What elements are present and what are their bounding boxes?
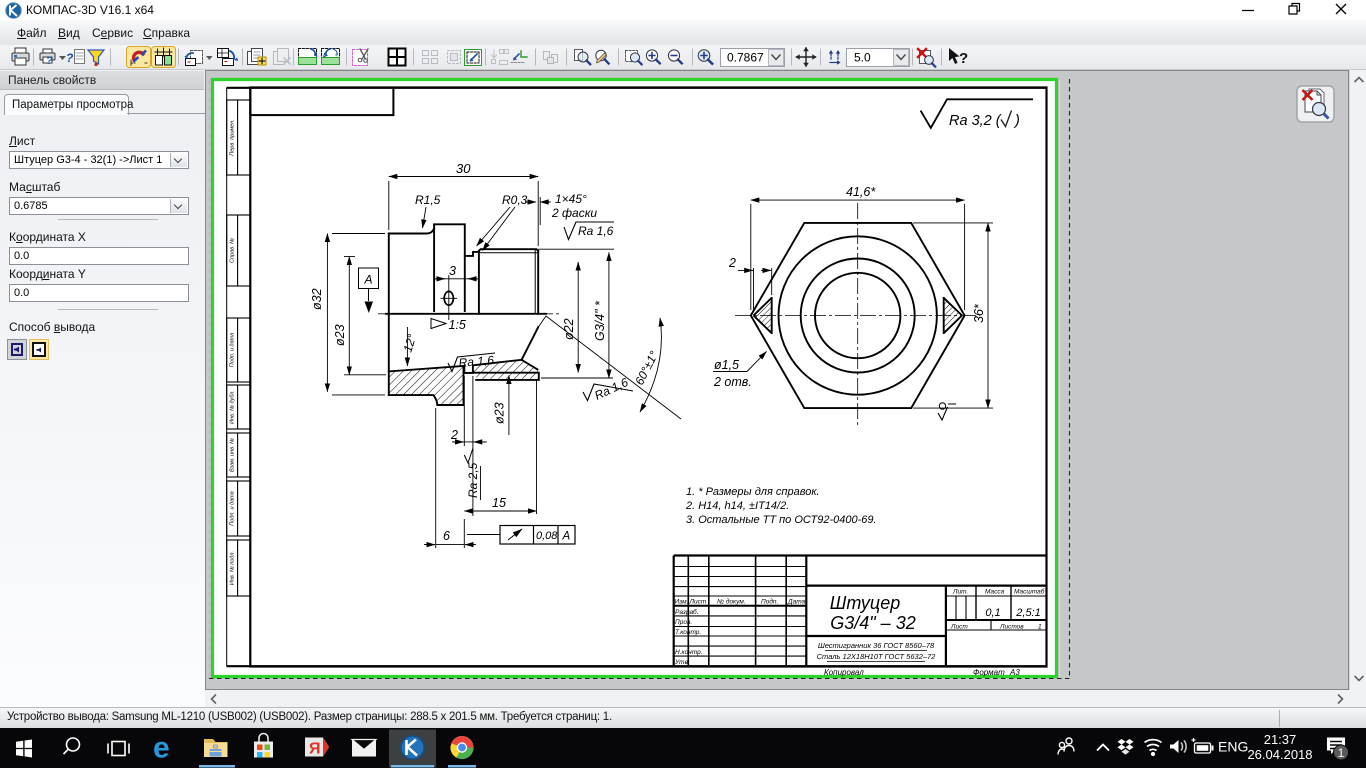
svg-text:1:5: 1:5: [449, 318, 466, 332]
svg-text:30: 30: [456, 161, 471, 176]
svg-text:Лист: Лист: [950, 624, 968, 631]
svg-text:Масштаб: Масштаб: [1014, 588, 1045, 596]
svg-text:Ra 2,5: Ra 2,5: [466, 462, 480, 498]
svg-text:ø32: ø32: [310, 288, 324, 310]
svg-text:Дата: Дата: [787, 599, 806, 606]
svg-text:Лист: Лист: [689, 599, 707, 606]
svg-text:Подп. и дата: Подп. и дата: [230, 491, 236, 525]
svg-text:Формат: Формат: [973, 668, 1005, 677]
svg-text:0,08: 0,08: [536, 530, 558, 542]
svg-text:Изм.: Изм.: [675, 599, 689, 606]
svg-text:5.0: 5.0: [854, 51, 871, 65]
svg-text:G3/4" *: G3/4" *: [593, 300, 607, 341]
svg-text:А3: А3: [1009, 668, 1020, 677]
svg-text:Инв. № подл.: Инв. № подл.: [230, 551, 236, 585]
svg-text:3: 3: [449, 264, 456, 278]
svg-text:15: 15: [492, 496, 506, 510]
svg-text:?: ?: [959, 50, 968, 67]
svg-text:Подп.: Подп.: [761, 598, 778, 606]
svg-text:Копировал: Копировал: [824, 668, 864, 677]
svg-text:e: e: [153, 732, 170, 765]
svg-text:6: 6: [443, 529, 450, 543]
svg-text:1: 1: [1038, 624, 1042, 631]
svg-text:): ): [1013, 113, 1020, 129]
svg-text:1. * Размеры для справок.: 1. * Размеры для справок.: [686, 486, 820, 498]
svg-text:2,5:1: 2,5:1: [1015, 607, 1040, 619]
svg-text:Штуцер: Штуцер: [830, 593, 900, 613]
svg-text:G3/4" – 32: G3/4" – 32: [830, 613, 915, 633]
svg-text:ENG: ENG: [1218, 739, 1248, 755]
svg-text:Утв.: Утв.: [674, 659, 690, 666]
svg-text:ø23: ø23: [493, 402, 507, 424]
svg-text:Я: Я: [309, 741, 321, 758]
svg-text:А: А: [364, 273, 373, 287]
svg-text:Подп. и дата: Подп. и дата: [230, 333, 236, 367]
svg-text:2. Н14, h14, ±IT14/2.: 2. Н14, h14, ±IT14/2.: [685, 500, 789, 512]
svg-text:Т.контр.: Т.контр.: [675, 629, 701, 636]
svg-text:2 отв.: 2 отв.: [713, 375, 752, 389]
svg-text:21:37: 21:37: [1264, 732, 1297, 747]
svg-text:Лит.: Лит.: [952, 589, 968, 596]
svg-text:Шестигранник 36 ГОСТ 8560–78: Шестигранник 36 ГОСТ 8560–78: [818, 641, 935, 650]
svg-text:2: 2: [450, 428, 458, 442]
svg-text:Масса: Масса: [985, 589, 1005, 596]
svg-text:ø1,5: ø1,5: [714, 358, 739, 372]
svg-text:Разраб.: Разраб.: [675, 608, 699, 616]
svg-text:?: ?: [46, 55, 53, 67]
svg-text:3. Остальные ТТ по ОСТ92-0400: 3. Остальные ТТ по ОСТ92-0400-69.: [686, 514, 877, 526]
svg-text:26.04.2018: 26.04.2018: [1247, 747, 1312, 762]
svg-text:R1,5: R1,5: [415, 193, 441, 207]
svg-text:Пров.: Пров.: [675, 619, 692, 626]
svg-text:Перв. примен.: Перв. примен.: [230, 119, 236, 156]
svg-text:2: 2: [728, 256, 736, 270]
svg-text:Инв. № дубл.: Инв. № дубл.: [230, 390, 236, 424]
svg-text:Ra 1,6: Ra 1,6: [578, 224, 614, 238]
svg-text:Н.контр.: Н.контр.: [675, 649, 703, 656]
svg-text:Сталь 12Х18Н10Т ГОСТ 5632–72: Сталь 12Х18Н10Т ГОСТ 5632–72: [817, 652, 937, 661]
svg-text:2 фаски: 2 фаски: [551, 206, 597, 220]
svg-text:Листов: Листов: [999, 624, 1024, 631]
svg-text:ø23: ø23: [333, 324, 347, 346]
svg-text:R0,3: R0,3: [502, 193, 528, 207]
svg-text:А: А: [562, 531, 571, 543]
svg-text:41,6*: 41,6*: [846, 185, 876, 199]
svg-text:0,1: 0,1: [985, 607, 1000, 619]
svg-text:1×45°: 1×45°: [555, 192, 587, 206]
svg-text:Взам. инв. №: Взам. инв. №: [230, 438, 236, 472]
svg-text:36*: 36*: [972, 303, 986, 323]
svg-text:?: ?: [66, 51, 74, 65]
svg-text:0.7867: 0.7867: [727, 51, 764, 65]
svg-text:Справ. №: Справ. №: [230, 238, 236, 263]
svg-text:Ra 3,2 (: Ra 3,2 (: [949, 113, 1003, 129]
svg-text:№ докум.: № докум.: [717, 598, 746, 606]
svg-text:1: 1: [1338, 746, 1345, 760]
